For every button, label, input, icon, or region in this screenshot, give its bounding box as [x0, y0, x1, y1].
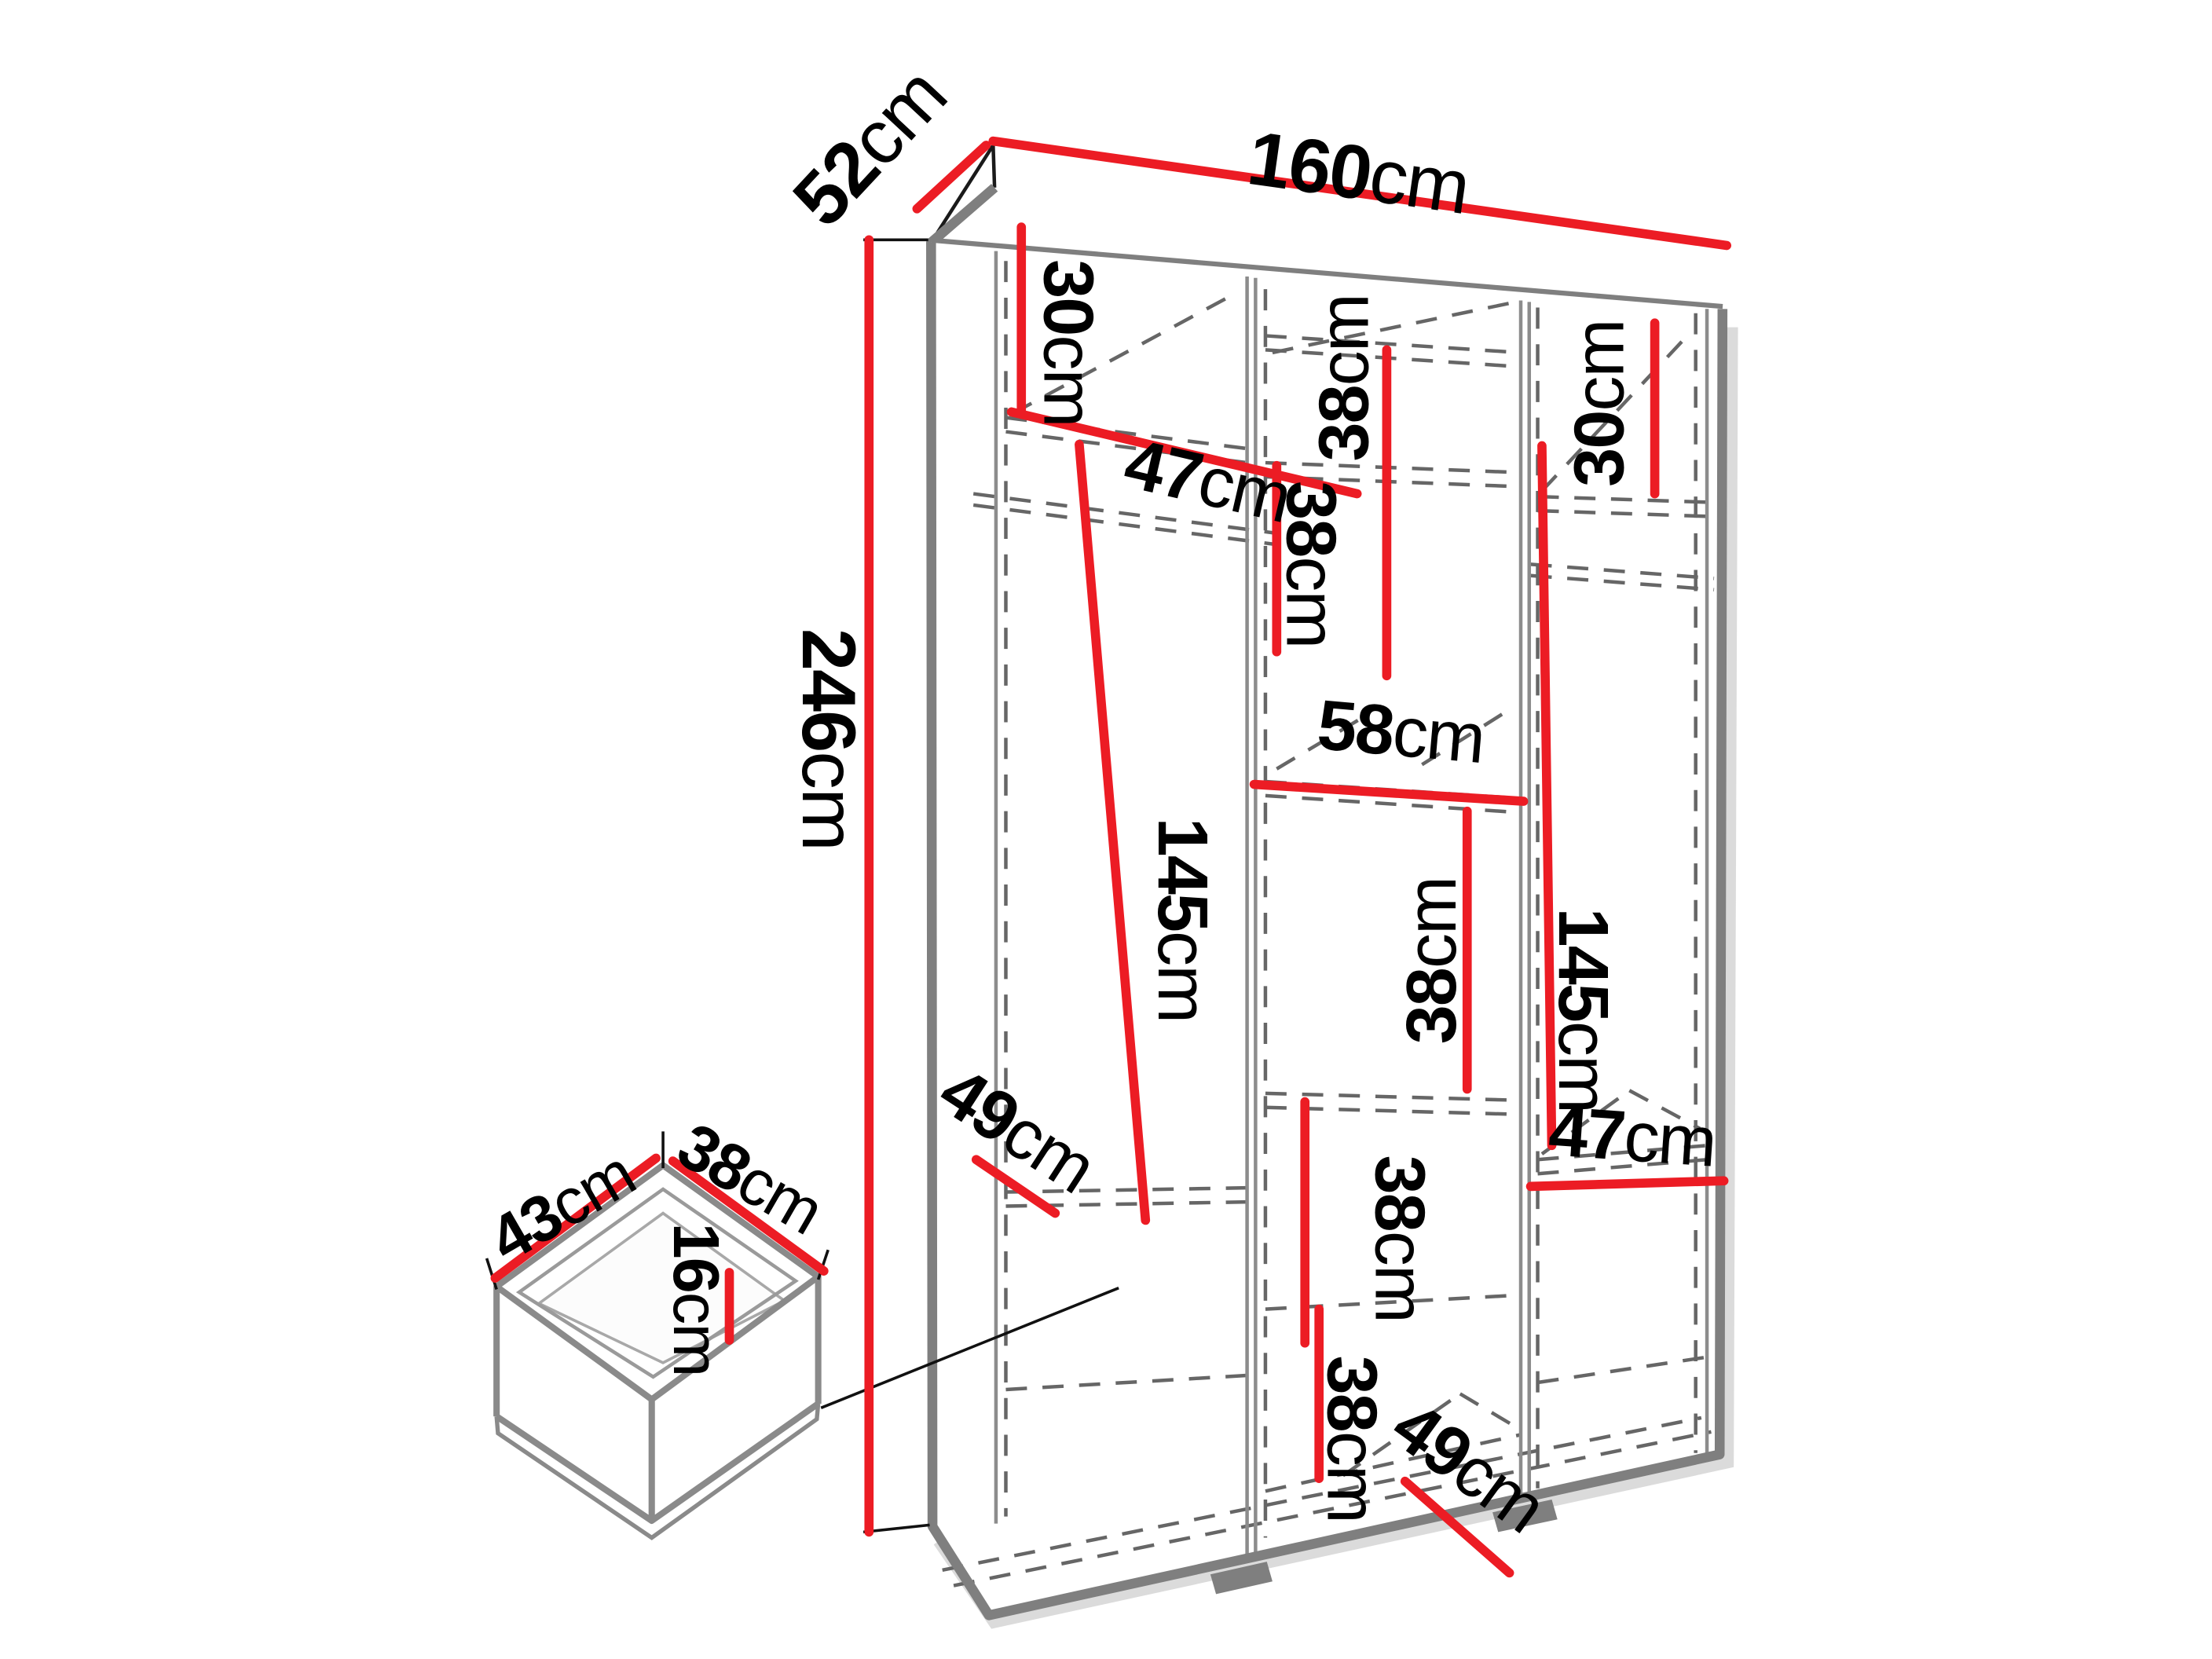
- dim-line-right-shelf-width: [1531, 1181, 1724, 1186]
- dim-label-drawer-height: 16cm: [661, 1223, 734, 1376]
- dim-label-mid-cell-2: 38cm: [1271, 481, 1350, 647]
- dim-label-right-shelf-width: 47cm: [1546, 1092, 1718, 1182]
- dim-label-left-top-shelf: 30cm: [1029, 259, 1108, 426]
- dim-label-mid-cell-5: 38cm: [1312, 1356, 1390, 1522]
- dim-label-right-top-shelf: 30cm: [1561, 320, 1639, 486]
- dim-label-right-hanging: 145cm: [1544, 908, 1622, 1113]
- wardrobe-dimension-diagram: 160cm 52cm 246cm 30cm 47cm 38cm 30cm 38c…: [0, 0, 2212, 1659]
- dim-label-height: 246cm: [786, 628, 872, 850]
- dim-label-mid-cell-1: 38cm: [1306, 295, 1384, 461]
- dim-label-left-hanging: 145cm: [1143, 818, 1221, 1023]
- dim-label-mid-cell-3: 38cm: [1393, 877, 1471, 1044]
- dim-label-depth: 52cm: [776, 52, 962, 243]
- dim-label-mid-cell-4: 38cm: [1361, 1155, 1439, 1322]
- dim-label-mid-shelf-width: 58cm: [1314, 686, 1487, 778]
